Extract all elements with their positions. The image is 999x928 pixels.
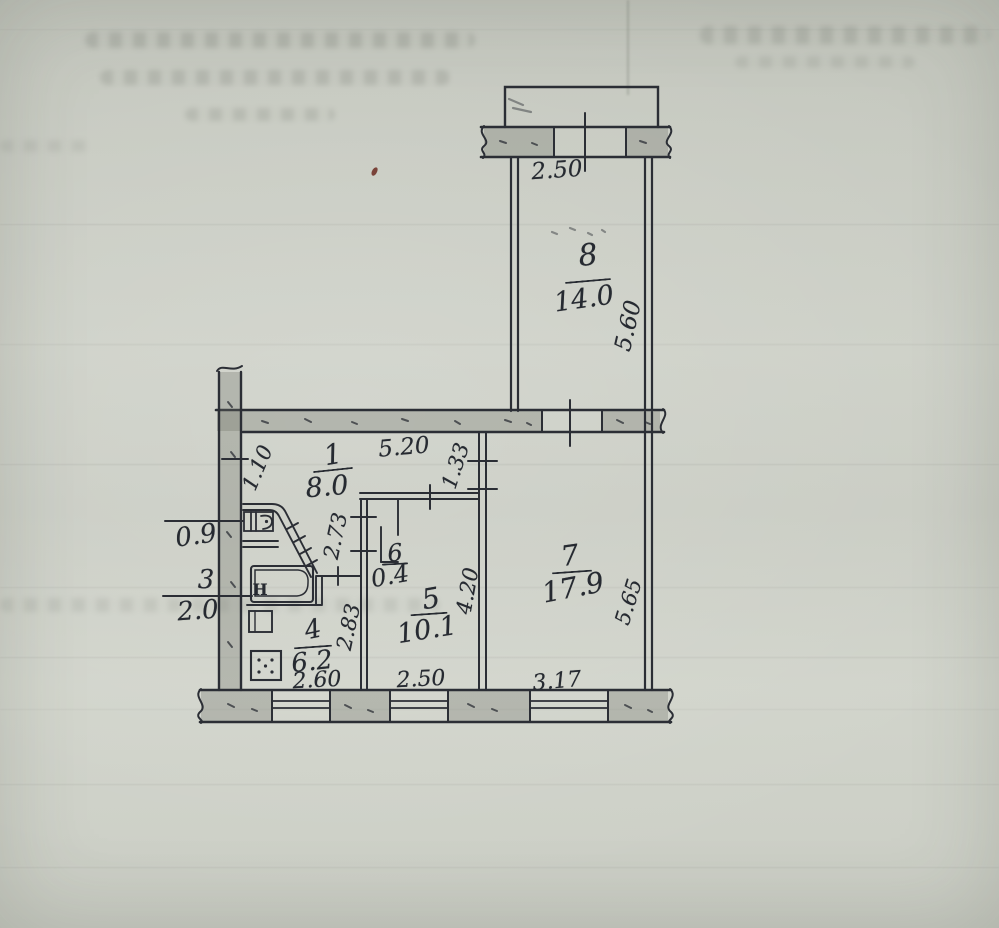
plan-linework (0, 0, 999, 928)
bath-faucet-mark: H (252, 582, 267, 598)
room-8-area: 14.0 (552, 281, 615, 316)
room-1-area: 8.0 (304, 472, 349, 503)
dim-hallway-width: 5.20 (377, 434, 430, 461)
dim-balcony-width: 2.50 (531, 158, 584, 185)
dim-kitchen-width: 2.60 (292, 669, 342, 694)
window-glazing-lines (272, 701, 608, 708)
stove (251, 651, 281, 680)
room-8-number: 8 (577, 240, 599, 272)
bottom-wall (198, 689, 673, 723)
dim-room5-width: 2.50 (396, 668, 446, 693)
room-7-number: 7 (559, 541, 581, 571)
dim-room7-width: 3.17 (532, 669, 583, 695)
toilet (249, 611, 272, 632)
right-outer-wall (645, 412, 652, 690)
floor-plan-sheet: 2.50 8 14.0 5.60 5.20 1 8.0 1.10 1.33 2.… (0, 0, 999, 928)
dim-bath-width: 0.9 (174, 520, 219, 552)
room-3-number: 3 (198, 567, 215, 593)
left-outer-wall (217, 366, 242, 690)
apartment-top-wall (216, 400, 665, 446)
balcony-outline (505, 87, 658, 127)
room-6-area: 0.4 (369, 561, 411, 591)
room-3-area: 2.0 (176, 597, 219, 626)
sink (244, 512, 273, 531)
